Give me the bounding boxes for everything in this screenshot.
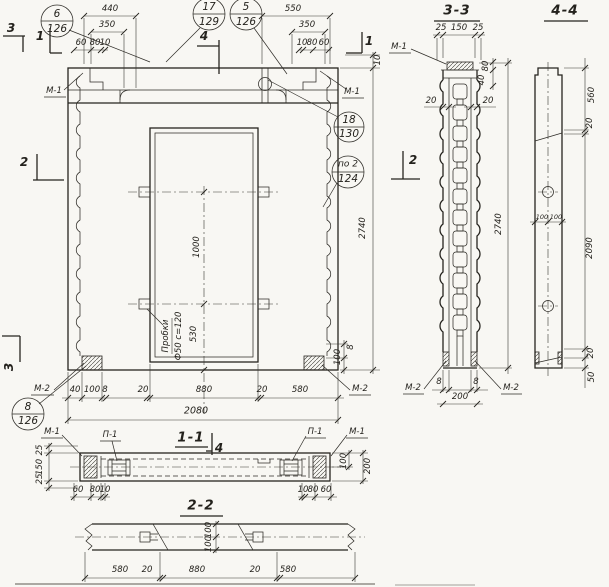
elevation-view (68, 68, 338, 414)
dim-label: 40 (478, 75, 487, 86)
cut-mark-4: 4 (200, 30, 208, 42)
dim-label: 20 (586, 118, 595, 129)
cut-mark-1: 1 (36, 30, 44, 42)
dim-label: 100 (550, 214, 562, 221)
callout-sheet: 130 (339, 129, 359, 140)
dim-label: 8 (473, 378, 478, 387)
dim-label: 8 (102, 386, 107, 395)
embed-label-m1: М-1 (44, 428, 60, 437)
embed-label-m2: М-2 (405, 384, 421, 393)
section-4-4 (530, 21, 589, 388)
embed-label-m1: М-1 (349, 428, 365, 437)
dim-label: 8 (436, 378, 441, 387)
dim-label: 60 (73, 486, 84, 495)
dim-label: 1000 (193, 236, 202, 258)
section-title-3-3: 3-3 (443, 4, 470, 18)
dim-label: 10 (100, 39, 111, 48)
callout-number: по 2 (338, 161, 358, 170)
dim-label: 580 (292, 386, 308, 395)
dim-label: 25 (36, 474, 45, 485)
embed-label-p1: П-1 (103, 431, 118, 440)
dim-label: 880 (196, 386, 212, 395)
dim-label: 20 (142, 566, 153, 575)
cut-mark-3: 3 (3, 363, 15, 371)
callout-sheet: 126 (236, 17, 256, 28)
embed-label-m1: М-1 (46, 87, 62, 96)
dim-label: 25 (473, 24, 484, 33)
dim-label: 60 (76, 39, 87, 48)
callout-number: 8 (25, 402, 32, 413)
dim-label: 25 (436, 24, 447, 33)
scan-artifact (395, 584, 475, 586)
callout-number: 6 (54, 9, 61, 20)
dim-label: 580 (280, 566, 296, 575)
dim-label: 200 (452, 393, 468, 402)
scan-artifact (15, 583, 375, 585)
callout-number: 5 (243, 2, 250, 13)
dim-label: 60 (319, 39, 330, 48)
dim-label: 8 (347, 344, 356, 349)
dim-label: 20 (138, 386, 149, 395)
dim-label: 60 (321, 486, 332, 495)
linework (0, 0, 609, 587)
dim-label: 560 (588, 87, 597, 103)
dim-label: 20 (587, 348, 596, 359)
callout-sheet: 124 (338, 174, 358, 185)
dim-label: 10 (100, 486, 111, 495)
cut-mark-4: 4 (215, 442, 223, 454)
dim-label: 150 (451, 24, 467, 33)
dim-label: 40 (70, 386, 81, 395)
dim-label: 10 (374, 55, 383, 66)
section-title-4-4: 4-4 (551, 4, 578, 18)
dim-label: 880 (189, 566, 205, 575)
section-title-2-2: 2-2 (187, 499, 214, 513)
dim-label: 25 (36, 445, 45, 456)
dim-label: 100 (334, 349, 343, 365)
cut-mark-2: 2 (20, 156, 28, 168)
dim-label: 80 (308, 486, 319, 495)
plug-note-line1: Пробки (162, 320, 171, 353)
dim-label: 200 (364, 458, 373, 474)
dim-label: 80 (482, 61, 491, 72)
dim-label: 100 (536, 214, 548, 221)
dim-label: 580 (112, 566, 128, 575)
embed-label-m2: М-2 (34, 385, 50, 394)
callout-number: 17 (202, 2, 215, 13)
callout-sheet: 129 (199, 17, 219, 28)
blueprint-sheet: 6 126 17 129 5 126 18 130 по 2 124 8 126… (0, 0, 609, 587)
embed-label-p1: П-1 (308, 428, 323, 437)
embed-label-m2: М-2 (503, 384, 519, 393)
dim-label: 2740 (495, 213, 504, 235)
dim-label: 100 (84, 386, 100, 395)
embed-label-m1: М-1 (391, 43, 407, 52)
dim-label: 100 (340, 453, 349, 469)
section-title-1-1: 1-1 (177, 431, 204, 445)
callout-number: 18 (342, 115, 355, 126)
callout-sheet: 126 (47, 24, 67, 35)
callout-sheet: 126 (18, 416, 38, 427)
cut-mark-2: 2 (409, 154, 417, 166)
dim-label: 20 (483, 97, 494, 106)
dim-label: 80 (307, 39, 318, 48)
embed-label-m2: М-2 (352, 385, 368, 394)
dim-label: 350 (99, 21, 115, 30)
cut-mark-3: 3 (7, 22, 15, 34)
dim-label: 50 (588, 372, 597, 383)
dim-label-total: 2080 (184, 406, 208, 416)
dim-label: 20 (250, 566, 261, 575)
cut-mark-1: 1 (365, 35, 373, 47)
dim-label: 20 (426, 97, 437, 106)
embed-label-m1: М-1 (344, 88, 360, 97)
plug-note-line2: Ф50 с=120 (175, 312, 184, 361)
dim-label: 20 (257, 386, 268, 395)
dim-label: 2090 (586, 237, 595, 259)
dim-label: 100 (205, 536, 214, 552)
dim-label: 350 (299, 21, 315, 30)
dim-label: 440 (102, 5, 118, 14)
dim-label: 550 (285, 5, 301, 14)
dim-label: 530 (190, 326, 199, 342)
dim-label: 2740 (359, 217, 368, 239)
